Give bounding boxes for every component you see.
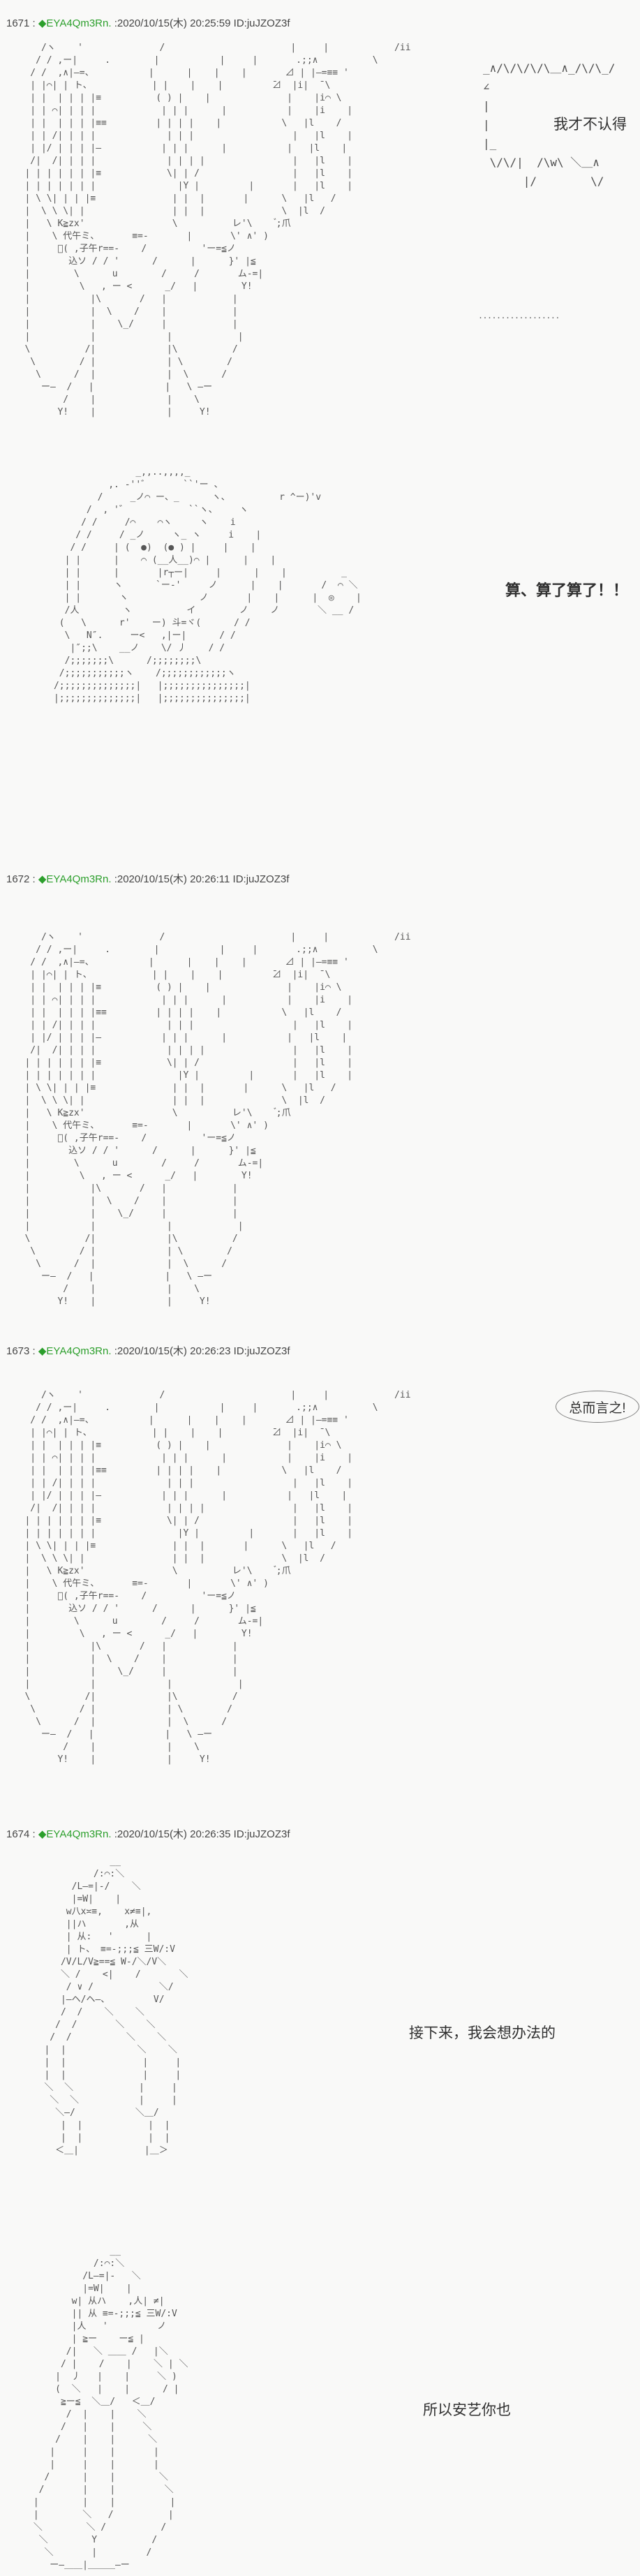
header-separator: :: [29, 1345, 38, 1357]
header-separator: :: [29, 873, 38, 885]
post-number: 1671: [6, 17, 29, 29]
poster-tripcode: ◆EYA4Qm3Rn.: [38, 1828, 112, 1840]
speech-text-forget-it: 算、算了算了！！: [505, 578, 628, 600]
post-id: ID:juJZOZ3f: [231, 17, 290, 29]
header-separator: :: [29, 17, 38, 29]
poster-tripcode: ◆EYA4Qm3Rn.: [38, 873, 112, 885]
post-id: ID:juJZOZ3f: [231, 1345, 290, 1357]
speech-text-anyway: 总而言之!: [569, 1398, 625, 1416]
thread-page: 1671 : ◆EYA4Qm3Rn. :2020/10/15(木) 20:25:…: [0, 0, 640, 2576]
ascii-art-boy: /ヽ ' / | | /ii / / ,ー| . | | | .;;∧ \ / …: [8, 1389, 411, 1766]
post-1673: 1673 : ◆EYA4Qm3Rn. :2020/10/15(木) 20:26:…: [0, 1339, 640, 1822]
post-id: ID:juJZOZ3f: [230, 873, 289, 885]
post-datetime: :2020/10/15(木) 20:26:23: [112, 1345, 231, 1357]
ascii-art-face-2: __ /:⌒:＼ /L—=|- ＼ |=W| | w| 从ハ ,人| ≠| ||…: [28, 2245, 188, 2572]
speech-text-so-you-too: 所以安艺你也: [423, 2399, 511, 2420]
speech-text-not-recognize: 我才不认得: [553, 113, 627, 134]
poster-tripcode: ◆EYA4Qm3Rn.: [38, 1345, 112, 1357]
post-datetime: :2020/10/15(木) 20:26:11: [112, 873, 230, 885]
ascii-art-boy: /ヽ ' / | | /ii / / ,ー| . | | | .;;∧ \ / …: [8, 42, 411, 419]
post-1672: 1672 : ◆EYA4Qm3Rn. :2020/10/15(木) 20:26:…: [0, 867, 640, 1339]
ascii-art-girl: _,,..,,,,_ ,. -''゛ ``'ー 、 / _ノ⌒ ー、_ ヽ、 r…: [21, 466, 362, 705]
post-number: 1674: [6, 1828, 29, 1840]
post-datetime: :2020/10/15(木) 20:25:59: [112, 17, 231, 29]
speech-text-next-plan: 接下来，我会想办法的: [409, 2022, 556, 2043]
ascii-art-boy: /ヽ ' / | | /ii / / ,ー| . | | | .;;∧ \ / …: [8, 931, 411, 1308]
post-header: 1673 : ◆EYA4Qm3Rn. :2020/10/15(木) 20:26:…: [6, 1343, 290, 1358]
post-header: 1674 : ◆EYA4Qm3Rn. :2020/10/15(木) 20:26:…: [6, 1826, 290, 1841]
post-number: 1673: [6, 1345, 29, 1357]
poster-tripcode: ◆EYA4Qm3Rn.: [38, 17, 112, 29]
post-header: 1671 : ◆EYA4Qm3Rn. :2020/10/15(木) 20:25:…: [6, 15, 290, 30]
post-header: 1672 : ◆EYA4Qm3Rn. :2020/10/15(木) 20:26:…: [6, 871, 289, 886]
ascii-art-face-1: __ /:⌒:＼ /L—=|-/ ＼ |=W| | w八x≍≡, x≠≡|, |…: [28, 1856, 188, 2157]
post-number: 1672: [6, 873, 29, 885]
header-separator: :: [29, 1828, 38, 1840]
post-1671: 1671 : ◆EYA4Qm3Rn. :2020/10/15(木) 20:25:…: [0, 15, 640, 867]
post-1674: 1674 : ◆EYA4Qm3Rn. :2020/10/15(木) 20:26:…: [0, 1822, 640, 2576]
post-id: ID:juJZOZ3f: [231, 1828, 290, 1840]
oval-speech-bubble: 总而言之!: [556, 1391, 639, 1423]
ellipsis-dots: ··················: [479, 311, 560, 323]
post-datetime: :2020/10/15(木) 20:26:35: [112, 1828, 231, 1840]
